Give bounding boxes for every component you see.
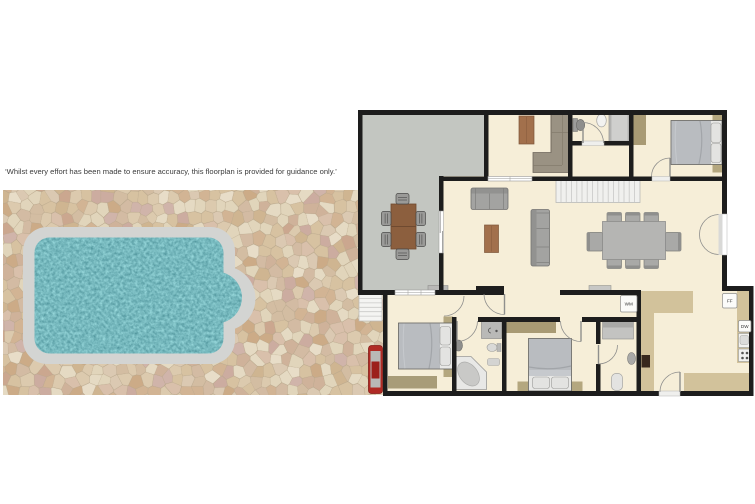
svg-text:WM: WM <box>625 302 633 307</box>
svg-text:FF: FF <box>727 299 733 304</box>
svg-text:‘Whilst every effort has been: ‘Whilst every effort has been made to en… <box>5 167 337 176</box>
svg-text:DW: DW <box>741 324 749 329</box>
